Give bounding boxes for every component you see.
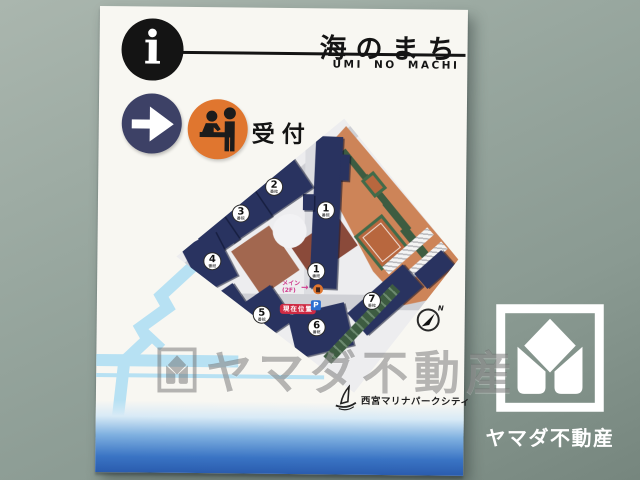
sailboat-icon	[334, 384, 358, 410]
wave-band-thick	[96, 354, 238, 367]
map-marker-building-3: 3 番館	[232, 204, 250, 222]
map-marker-building-5: 5 番館	[253, 306, 271, 324]
north-label: N	[438, 305, 444, 313]
building-shape-1-annex	[303, 194, 314, 210]
ocean-gradient-band	[95, 400, 464, 476]
developer-logotype: 西宮マリナパークシティ	[334, 384, 471, 411]
wall-logo: ヤマダ不動産	[484, 302, 616, 451]
reception-icon	[187, 99, 248, 160]
yamada-wall-logo-icon	[494, 302, 606, 414]
arrow-right-icon	[121, 93, 182, 154]
wall-logo-text: ヤマダ不動産	[484, 422, 616, 451]
developer-name: 西宮マリナパークシティ	[361, 393, 471, 408]
parking-icon: P	[311, 300, 321, 310]
entrance-arrow-icon: →	[301, 283, 309, 293]
information-sign-board: i 海のまち UMI NO MACHI 受付	[95, 6, 468, 476]
map-marker-building-1b: 1 番館	[307, 262, 325, 280]
map-marker-building-1: 1 番館	[317, 201, 335, 219]
sign-subtitle: UMI NO MACHI	[332, 58, 459, 71]
info-icon-glyph: i	[144, 24, 162, 70]
building-shape-1-annex	[340, 154, 350, 180]
map-marker-building-6: 6 番館	[308, 318, 326, 336]
main-entrance-label: メイン (2F) →	[282, 281, 309, 294]
arrow-right-glyph	[121, 93, 182, 154]
reception-pictogram	[187, 99, 248, 160]
map-marker-building-2: 2 番館	[265, 178, 283, 196]
map-marker-building-4: 4 番館	[203, 252, 221, 270]
map-marker-building-7: 7 番館	[363, 292, 381, 310]
info-icon: i	[121, 18, 184, 81]
compass-icon	[417, 308, 440, 331]
reception-map-dot	[313, 284, 323, 294]
round-plaza	[272, 214, 306, 248]
reception-label: 受付	[252, 115, 312, 150]
